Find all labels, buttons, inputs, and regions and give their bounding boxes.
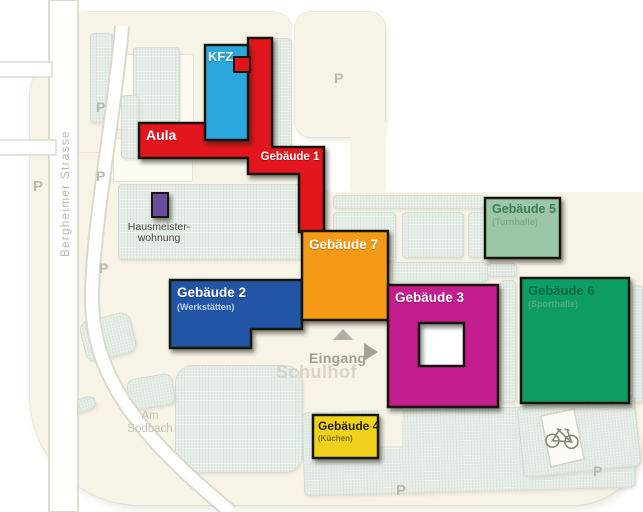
parking-marker: P <box>99 261 108 275</box>
parking-marker: P <box>96 169 105 183</box>
label-kfz: KFZ <box>208 49 233 64</box>
gebaeude-3-courtyard <box>419 323 464 366</box>
campus-site-map: Aula KFZ Gebäude 1 Gebäude 2 (Werkstätte… <box>0 0 643 512</box>
parking-marker: P <box>334 71 343 85</box>
sublabel-gebaeude-4: (Küchen) <box>318 434 353 443</box>
label-gebaeude-3: Gebäude 3 <box>395 290 464 305</box>
building-gebaeude-1-notch <box>234 57 250 72</box>
label-gebaeude-7: Gebäude 7 <box>309 237 378 252</box>
sublabel-gebaeude-5: (Turnhalle) <box>492 217 538 227</box>
street-label-sodbach: Sodbach <box>118 423 182 436</box>
label-schulhof: Schulhof <box>276 362 357 383</box>
parking-marker: P <box>96 100 105 114</box>
label-hausmeisterwohnung-line2: wohnung <box>116 233 202 244</box>
sublabel-gebaeude-2: (Werkstätten) <box>177 302 234 312</box>
label-aula: Aula <box>146 127 176 143</box>
label-gebaeude-2: Gebäude 2 <box>177 285 246 300</box>
street-label-bergheimer-strasse: Bergheimer Strasse <box>60 112 77 257</box>
street-label-am: Am <box>118 410 182 423</box>
label-gebaeude-1: Gebäude 1 <box>259 151 321 163</box>
bike-parking-pad <box>541 409 584 467</box>
building-hausmeisterwohnung-shape <box>152 193 168 217</box>
label-hausmeisterwohnung: Hausmeister- wohnung <box>116 222 202 244</box>
parking-marker: P <box>396 484 406 498</box>
parking-marker: P <box>593 464 602 478</box>
arrow-right-icon <box>364 343 378 361</box>
sublabel-gebaeude-6: (Sporthalle) <box>528 299 578 309</box>
label-gebaeude-6: Gebäude 6 <box>528 283 594 298</box>
label-gebaeude-4: Gebäude 4 <box>318 419 379 433</box>
parking-marker: P <box>33 180 43 194</box>
label-gebaeude-5: Gebäude 5 <box>492 202 556 216</box>
street-label-am-sodbach: Am Sodbach <box>118 410 182 435</box>
arrow-up-icon <box>333 329 353 340</box>
